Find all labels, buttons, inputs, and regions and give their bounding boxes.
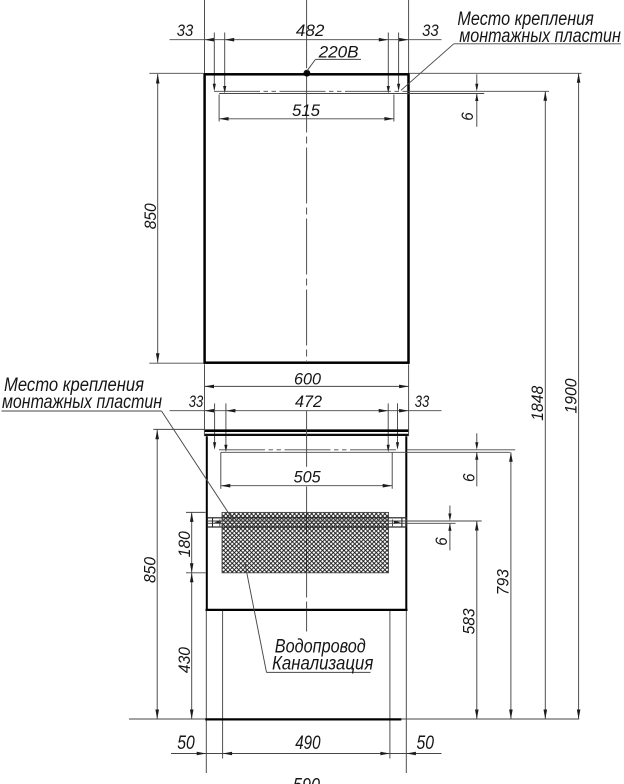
svg-text:793: 793 [494, 568, 512, 595]
svg-text:Канализация: Канализация [272, 653, 374, 675]
svg-text:33: 33 [177, 22, 194, 40]
svg-text:850: 850 [142, 203, 160, 230]
svg-text:583: 583 [460, 608, 478, 635]
svg-text:33: 33 [189, 393, 204, 411]
svg-text:монтажных пластин: монтажных пластин [2, 391, 162, 413]
svg-text:850: 850 [142, 556, 160, 583]
svg-text:1848: 1848 [529, 385, 547, 421]
svg-text:180: 180 [176, 530, 194, 557]
svg-text:472: 472 [295, 393, 322, 411]
svg-text:6: 6 [433, 536, 451, 545]
svg-text:515: 515 [292, 102, 321, 120]
svg-text:220В: 220В [318, 42, 359, 61]
svg-text:490: 490 [295, 732, 320, 754]
svg-text:33: 33 [422, 22, 439, 40]
svg-text:1900: 1900 [562, 378, 580, 414]
svg-text:600: 600 [294, 370, 322, 388]
svg-text:430: 430 [176, 646, 194, 673]
svg-text:50: 50 [177, 732, 195, 754]
svg-text:505: 505 [294, 468, 322, 486]
svg-text:590: 590 [293, 775, 320, 784]
svg-text:6: 6 [459, 111, 477, 120]
svg-text:50: 50 [417, 732, 435, 754]
svg-text:6: 6 [460, 473, 478, 482]
svg-text:482: 482 [296, 22, 325, 40]
svg-text:33: 33 [415, 393, 430, 411]
